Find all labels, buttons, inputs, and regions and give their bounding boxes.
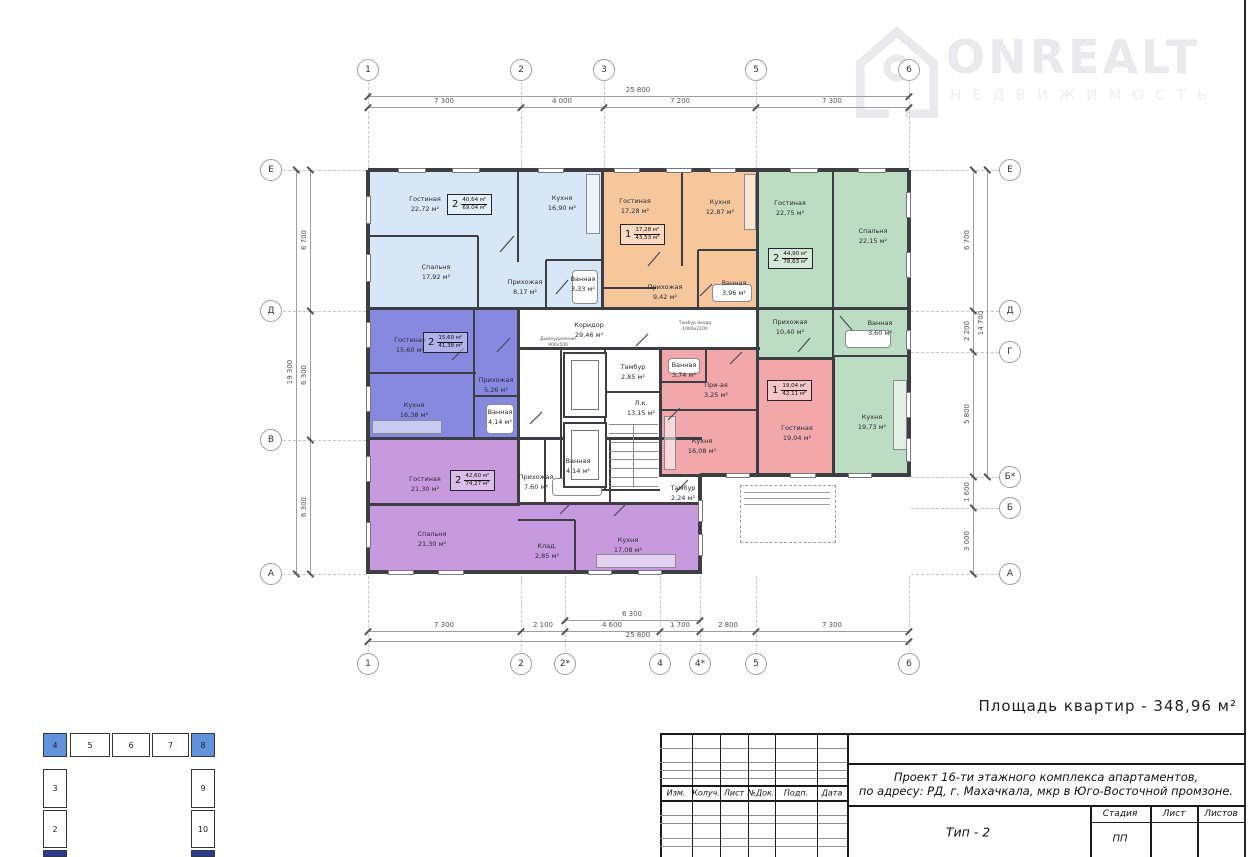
sheet-frame-line	[1244, 0, 1246, 857]
room-label: Прихожая10,40 м²	[745, 318, 835, 338]
axis-circle: Д	[260, 300, 282, 322]
kitchen-counter	[372, 420, 442, 434]
wall	[518, 519, 575, 521]
room-area: 22,75 м²	[745, 209, 835, 219]
common-room-label: Тамбур2,85 м²	[588, 363, 678, 383]
room-name: Прихожая	[491, 473, 581, 483]
kitchen-counter	[596, 554, 676, 568]
room-area: 17,28 м²	[590, 207, 680, 217]
dim-label: 7 300	[419, 621, 469, 629]
entrance-step-line	[744, 492, 830, 493]
wall	[546, 259, 602, 261]
axis-circle: 6	[898, 59, 920, 81]
tb-col-podp: Подп.	[784, 789, 808, 798]
window	[398, 168, 426, 173]
keyplan-block-8: 8	[191, 733, 215, 757]
apartment-fill-apt-2k-purple	[368, 440, 518, 572]
apartment-rooms-count: 2	[773, 253, 779, 264]
apartment-info-apt-1k-orange: 117,28 м²43,53 м²	[620, 224, 665, 245]
dim-label: 2 100	[518, 621, 568, 629]
axis-line	[604, 82, 605, 168]
window	[858, 168, 886, 173]
room-name: При-ая	[671, 381, 761, 391]
dim-label: 7 300	[419, 97, 469, 105]
apartment-living-area: 44,90 м²	[782, 251, 808, 259]
axis-circle: Г	[999, 341, 1021, 363]
room-area: 4,14 м²	[455, 418, 545, 428]
window	[588, 570, 612, 575]
window	[438, 570, 464, 575]
entrance-porch	[740, 485, 836, 543]
dim-label: 6 300	[607, 610, 657, 618]
dim-label: 4 600	[587, 621, 637, 629]
dim-label: 19 300	[286, 347, 294, 397]
window	[848, 473, 872, 478]
common-room-label: Л.к.13,15 м²	[596, 399, 686, 419]
wall	[833, 355, 909, 357]
door-line	[636, 334, 648, 346]
axis-circle: 3	[593, 59, 615, 81]
wall	[368, 503, 520, 506]
room-label: Спальня22,15 м²	[828, 227, 918, 247]
total-area-note: Площадь квартир - 348,96 м²	[837, 697, 1237, 715]
axis-circle: 4*	[689, 653, 711, 675]
window	[366, 522, 371, 548]
axis-circle: Д	[999, 300, 1021, 322]
wall	[660, 474, 702, 477]
room-label: Гостиная17,28 м²	[590, 197, 680, 217]
apartment-info-apt-2k-green: 244,90 м²78,63 м²	[768, 248, 813, 269]
apartment-area-fraction: 15,60 м²41,38 м²	[437, 335, 463, 350]
room-name: Ванная	[538, 275, 628, 285]
axis-circle: В	[260, 429, 282, 451]
dim-label: 7 300	[807, 97, 857, 105]
room-name: Тамбур	[638, 484, 728, 494]
window	[388, 570, 414, 575]
apartment-total-area: 78,63 м²	[782, 259, 808, 266]
tb-project-line2: по адресу: РД, г. Махачкала, мкр в Юго-В…	[859, 784, 1233, 798]
axis-circle: Е	[999, 159, 1021, 181]
keyplan-block-5: 5	[70, 733, 110, 757]
dim-label: 5 800	[963, 389, 971, 439]
axis-circle: 2	[510, 653, 532, 675]
stair-divider	[633, 424, 634, 486]
room-name: Прихожая	[451, 376, 541, 386]
tb-col-data: Дата	[822, 789, 843, 798]
apartment-rooms-count: 2	[455, 475, 461, 486]
dim-line	[973, 170, 974, 574]
axis-circle: 2	[510, 59, 532, 81]
dim-label: 25 800	[613, 631, 663, 639]
axis-line	[756, 82, 757, 168]
axis-circle: 1	[357, 59, 379, 81]
dim-label: 7 300	[807, 621, 857, 629]
dim-label: 14 700	[977, 298, 985, 348]
room-area: 17,08 м²	[583, 546, 673, 556]
room-name: Кухня	[583, 536, 673, 546]
apartment-total-area: 69,04 м²	[461, 205, 487, 212]
apartment-total-area: 43,53 м²	[634, 235, 660, 242]
dim-label: 2 200	[963, 306, 971, 356]
apartment-rooms-count: 1	[625, 229, 631, 240]
axis-circle: А	[999, 563, 1021, 585]
dim-label: 6 700	[963, 215, 971, 265]
wall	[681, 170, 683, 266]
entrance-step-line	[744, 504, 830, 505]
room-area: 7,60 м²	[491, 483, 581, 493]
axis-circle: Е	[260, 159, 282, 181]
room-label: Кухня17,08 м²	[583, 536, 673, 556]
keyplan-block-partial	[191, 850, 215, 857]
room-name: Коридор	[544, 321, 634, 331]
plan-annotation: Тамбур входа 1000х2100	[660, 321, 730, 334]
window	[366, 456, 371, 482]
window	[538, 168, 564, 173]
room-label: Гостиная22,75 м²	[745, 199, 835, 219]
dim-label: 6 700	[300, 215, 308, 265]
dim-label: 2 800	[703, 621, 753, 629]
keyplan-block-3: 3	[43, 769, 67, 808]
wall	[607, 391, 660, 393]
room-label: Кухня16,38 м²	[369, 401, 459, 421]
apartment-total-area: 41,38 м²	[437, 343, 463, 350]
axis-circle: Б*	[999, 466, 1021, 488]
dim-label: 1 700	[655, 621, 705, 629]
dim-label: 6 300	[300, 482, 308, 532]
room-name: Ванная	[835, 319, 925, 329]
apartment-rooms-count: 1	[772, 385, 778, 396]
dim-label: 6 300	[300, 350, 308, 400]
room-area: 22,15 м²	[828, 237, 918, 247]
room-label: Ванная3,96 м²	[689, 279, 779, 299]
apartment-living-area: 15,60 м²	[437, 335, 463, 343]
apartment-living-area: 19,04 м²	[781, 383, 807, 391]
room-name: Гостиная	[745, 199, 835, 209]
room-name: Спальня	[391, 263, 481, 273]
dim-label: 3 000	[963, 516, 971, 566]
axis-line	[911, 574, 999, 575]
tb-col-ndok: №Док.	[748, 789, 775, 798]
axis-circle: Б	[999, 497, 1021, 519]
room-area: 19,04 м²	[752, 434, 842, 444]
tb-col-koluch: Колуч.	[692, 789, 720, 798]
axis-line	[911, 170, 999, 171]
tb-sheets-label: Листов	[1204, 809, 1238, 819]
room-name: Ванная	[533, 457, 623, 467]
room-area: 16,38 м²	[369, 411, 459, 421]
apartment-total-area: 42,11 м²	[781, 391, 807, 398]
entrance-step-line	[744, 498, 830, 499]
logo-brand-text: ONREALT	[946, 30, 1246, 84]
room-name: Прихожая	[745, 318, 835, 328]
room-area: 16,08 м²	[657, 447, 747, 457]
axis-circle: 6	[898, 653, 920, 675]
apartment-living-area: 17,28 м²	[634, 227, 660, 235]
room-name: Клад.	[502, 542, 592, 552]
keyplan-block-partial	[43, 850, 67, 857]
tb-col-izm: Изм.	[667, 789, 686, 798]
dim-label: 1 600	[963, 467, 971, 517]
common-room-label: Тамбур2,24 м²	[638, 484, 728, 504]
axis-line	[911, 352, 999, 353]
apartment-info-apt-2k-indigo: 215,60 м²41,38 м²	[423, 332, 468, 353]
axis-circle: 5	[745, 653, 767, 675]
tb-stage-value: ПП	[1112, 834, 1127, 845]
keyplan-block-2: 2	[43, 810, 67, 848]
wall	[758, 357, 835, 360]
window	[906, 192, 911, 218]
dim-line	[987, 170, 988, 477]
room-name: Кухня	[657, 437, 747, 447]
axis-circle: 4	[649, 653, 671, 675]
dim-label: 25 800	[613, 86, 663, 94]
room-label: Ванная3,33 м²	[538, 275, 628, 295]
wall	[368, 437, 702, 440]
axis-line	[911, 508, 999, 509]
room-label: Ванная4,14 м²	[455, 408, 545, 428]
room-label: Клад.2,85 м²	[502, 542, 592, 562]
tb-col-list: Лист	[724, 789, 744, 798]
room-area: 2,24 м²	[638, 494, 728, 504]
apartment-total-area: 74,27 м²	[464, 481, 490, 488]
room-name: Спальня	[387, 530, 477, 540]
room-name: Спальня	[828, 227, 918, 237]
wall	[698, 249, 758, 251]
axis-circle: 5	[745, 59, 767, 81]
keyplan-block-6: 6	[112, 733, 150, 757]
keyplan-block-4: 4	[43, 733, 67, 757]
window	[366, 196, 371, 224]
window	[614, 168, 640, 173]
room-name: Гостиная	[752, 424, 842, 434]
axis-line	[911, 311, 999, 312]
room-area: 21,30 м²	[387, 540, 477, 550]
room-name: Ванная	[455, 408, 545, 418]
room-area: 3,96 м²	[689, 289, 779, 299]
room-label: Спальня17,92 м²	[391, 263, 481, 283]
axis-circle: 1	[357, 653, 379, 675]
wall	[368, 235, 478, 237]
common-room-label: Прихожая7,60 м²	[491, 473, 581, 493]
dim-line	[310, 170, 311, 574]
tb-type: Тип - 2	[946, 825, 990, 840]
tb-stage-label: Стадия	[1103, 809, 1138, 819]
door-swing-lines	[0, 0, 1249, 857]
apartment-area-fraction: 42,60 м²74,27 м²	[464, 473, 490, 488]
room-area: 13,15 м²	[596, 409, 686, 419]
wall	[368, 372, 476, 374]
room-name: Кухня	[369, 401, 459, 411]
room-name: Ванная	[689, 279, 779, 289]
window	[710, 168, 736, 173]
room-area: 5,26 м²	[451, 386, 541, 396]
dim-line	[368, 107, 909, 108]
room-area: 2,85 м²	[502, 552, 592, 562]
room-area: 3,33 м²	[538, 285, 628, 295]
room-name: Гостиная	[590, 197, 680, 207]
plan-annotation: Дымоудаление 900х500	[523, 337, 593, 350]
logo-subtitle-text: НЕДВИЖИМОСТЬ	[950, 86, 1249, 104]
house-icon	[856, 26, 938, 118]
wall	[368, 307, 909, 310]
tb-sheet-label: Лист	[1163, 809, 1186, 819]
keyplan-block-7: 7	[152, 733, 189, 757]
axis-circle: 2*	[554, 653, 576, 675]
apartment-area-fraction: 40,64 м²69,04 м²	[461, 197, 487, 212]
apartment-area-fraction: 19,04 м²42,11 м²	[781, 383, 807, 398]
dim-label: 7 200	[655, 97, 705, 105]
apartment-rooms-count: 2	[428, 337, 434, 348]
window	[906, 252, 911, 278]
room-label: Кухня16,08 м²	[657, 437, 747, 457]
apartment-living-area: 40,64 м²	[461, 197, 487, 205]
apartment-living-area: 42,60 м²	[464, 473, 490, 481]
dim-line	[368, 641, 909, 642]
apartment-info-apt-2k-blue: 240,64 м²69,04 м²	[447, 194, 492, 215]
keyplan-block-9: 9	[191, 769, 215, 808]
window	[790, 473, 816, 478]
apartment-area-fraction: 44,90 м²78,63 м²	[782, 251, 808, 266]
floor-plan-sheet: ONREALT НЕДВИЖИМОСТЬ Площадь квартир - 3…	[0, 0, 1249, 857]
axis-line	[521, 82, 522, 168]
room-label: Прихожая5,26 м²	[451, 376, 541, 396]
room-area: 17,92 м²	[391, 273, 481, 283]
room-name: Л.к.	[596, 399, 686, 409]
window	[790, 168, 818, 173]
room-name: Кухня	[827, 413, 917, 423]
apartment-info-apt-2k-purple: 242,60 м²74,27 м²	[450, 470, 495, 491]
room-label: Гостиная19,04 м²	[752, 424, 842, 444]
window	[366, 254, 371, 282]
room-area: 10,40 м²	[745, 328, 835, 338]
axis-circle: А	[260, 563, 282, 585]
room-label: Спальня21,30 м²	[387, 530, 477, 550]
apartment-info-apt-1k-pink: 119,04 м²42,11 м²	[767, 380, 812, 401]
room-area: 2,85 м²	[588, 373, 678, 383]
apartment-area-fraction: 17,28 м²43,53 м²	[634, 227, 660, 242]
axis-line	[911, 477, 999, 478]
tb-project-line1: Проект 16-ти этажного комплекса апартаме…	[894, 770, 1198, 784]
room-label: Ванная3,60 м²	[835, 319, 925, 339]
window	[698, 534, 703, 556]
room-area: 3,60 м²	[835, 329, 925, 339]
room-name: Тамбур	[588, 363, 678, 373]
window	[638, 570, 662, 575]
window	[726, 473, 750, 478]
room-label: При-ая3,25 м²	[671, 381, 761, 401]
wall	[517, 170, 519, 262]
dim-line	[296, 170, 297, 574]
apartment-fill-apt-1k-pink	[758, 358, 833, 475]
apartment-rooms-count: 2	[452, 199, 458, 210]
dim-label: 4 000	[537, 97, 587, 105]
window	[452, 168, 480, 173]
window	[666, 168, 692, 173]
keyplan-block-10: 10	[191, 810, 215, 848]
